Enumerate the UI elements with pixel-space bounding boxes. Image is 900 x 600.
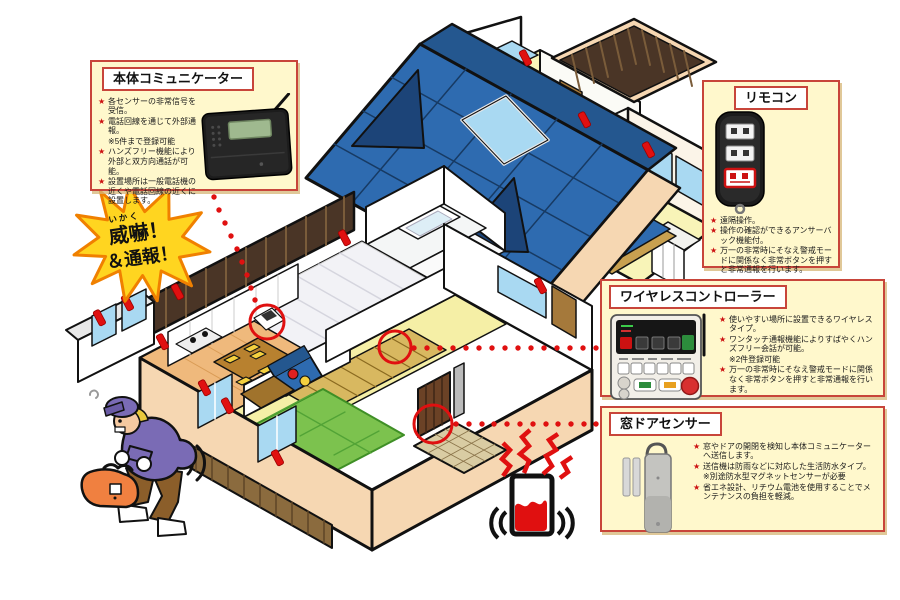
feature-bullet: ★ハンズフリー機能により外部と双方向通話が可能。 [98,147,200,176]
burglar-teeth [115,427,125,432]
callout-door-sensor: 窓ドアセンサー ★窓やドアの開閉を検知し本体コミュニケーターへ送信します。 ★送… [600,406,885,532]
burglar-eye [118,419,122,423]
feature-bullet: ★設置場所は一般電話機の近くや電話回線の近くに設置します。 [98,177,200,206]
entrance-sidelight [454,363,464,418]
callout-remote: リモコン ★遠隔操作。 ★操作の確認ができるアンサーバック機能付。 ★万一の非常… [702,80,840,268]
feature-bullet: ★遠隔操作。 [710,216,832,226]
feature-bullet: ★送信機は防雨などに対応した生活防水タイプ。 [693,462,876,472]
callout-communicator-title: 本体コミュニケーター [102,67,254,91]
magnet-bar-2 [633,458,640,496]
callout-sensor-title: 窓ドアセンサー [609,412,722,436]
feature-bullet: ★万一の非常時にそなえ警戒モードに関係なく非常ボタンを押すと非常通報を行います。 [710,246,832,275]
sensor-features: ★窓やドアの開閉を検知し本体コミュニケーターへ送信します。 ★送信機は防雨などに… [693,442,876,538]
sensor-body-lower [645,496,671,532]
feature-bullet: ※5件まで登録可能 [98,137,200,147]
feature-bullet: ※2件登録可能 [719,355,876,365]
wireless-features: ★使いやすい場所に設置できるワイヤレスタイプ。 ★ワンタッチ通報機能によりすばや… [719,315,876,403]
callout-remote-title: リモコン [734,86,808,110]
controller-talk-key [682,335,694,350]
callout-wireless-title: ワイヤレスコントローラー [609,285,787,309]
sofa-cushion-yellow [300,376,310,386]
sofa-cushion-red [288,369,298,379]
door-sensor-photo [609,438,689,538]
magnet-bar-1 [623,458,630,496]
burglar-shoe-back [158,518,186,536]
burglar-glove-2 [137,457,151,471]
remote-button-disarm [726,146,754,161]
remote-photo [710,110,770,214]
feature-bullet: ★省エネ設計、リチウム電池を使用することでメンテナンスの負担を軽減。 [693,483,876,502]
callout-wireless-controller: ワイヤレスコントローラー [600,279,885,397]
feature-bullet: ★使いやすい場所に設置できるワイヤレスタイプ。 [719,315,876,334]
feature-bullet: ★ワンタッチ通報機能によりすばやくハンズフリー会話が可能。 [719,335,876,354]
feature-bullet: ※別途防水型マグネットセンサーが必要 [693,472,876,482]
feature-bullet: ★万一の非常時にそなえ警戒モードに関係なく非常ボタンを押すと非常通報を行います。 [719,365,876,394]
sweat-mark [90,391,98,398]
communicator-photo [200,93,296,189]
burglar-glove-1 [115,451,129,465]
feature-bullet: ★操作の確認ができるアンサーバック機能付。 [710,226,832,245]
controller-speaker [618,377,630,389]
wireless-controller-photo [609,311,713,403]
remote-button-arm [726,124,754,139]
feature-bullet: ★各センサーの非常信号を受信。 [98,97,200,116]
feature-bullet: ★電話回線を通じて外部通報。 [98,117,200,136]
communicator-lcd [228,119,271,139]
communicator-features: ★各センサーの非常信号を受信。 ★電話回線を通じて外部通報。 ※5件まで登録可能… [98,97,200,208]
feature-bullet: ★窓やドアの開閉を検知し本体コミュニケーターへ送信します。 [693,442,876,461]
controller-emergency-key [620,337,632,349]
remote-button-emergency [725,169,755,187]
remote-keyring [736,205,744,213]
callout-communicator: 本体コミュニケーター ★各センサーの非常信号を受信。 ★電話回線を通じて外部通報… [90,60,298,191]
bag-clasp [110,484,121,494]
security-system-diagram: いかく 威嚇！ ＆通報！ 本体コミュニケーター ★各センサーの非常信号を受信。 … [0,0,900,600]
dotted-line-wireless [411,345,598,350]
controller-emergency-button [682,377,699,394]
remote-features: ★遠隔操作。 ★操作の確認ができるアンサーバック機能付。 ★万一の非常時にそなえ… [710,216,832,276]
